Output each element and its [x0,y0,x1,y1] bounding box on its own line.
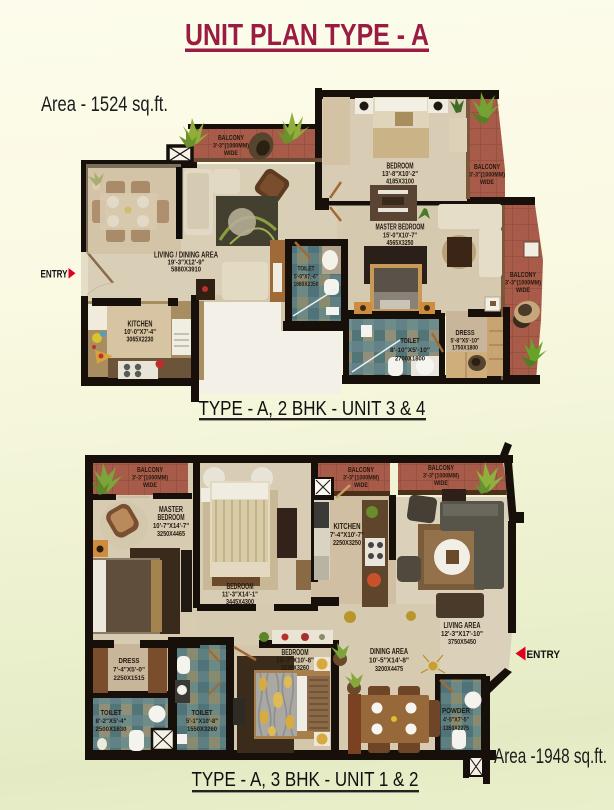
svg-text:BEDROOM: BEDROOM [282,648,309,657]
svg-text:1350X2275: 1350X2275 [443,726,470,732]
svg-text:BALCONY: BALCONY [474,164,500,171]
svg-text:3750X5450: 3750X5450 [448,639,476,646]
svg-text:3065X2230: 3065X2230 [127,337,154,344]
svg-text:2250X3250: 2250X3250 [333,540,361,547]
svg-text:1750X1800: 1750X1800 [452,345,478,352]
svg-text:BALCONY: BALCONY [137,467,163,474]
svg-text:KITCHEN: KITCHEN [128,320,153,329]
svg-text:10'-0"X7'-4": 10'-0"X7'-4" [124,329,156,336]
svg-text:5'-8"X5'-10": 5'-8"X5'-10" [451,338,480,345]
svg-text:BALCONY: BALCONY [510,272,536,279]
svg-text:5'-1"X10'-8": 5'-1"X10'-8" [186,719,218,725]
svg-text:WIDE: WIDE [224,150,239,157]
svg-text:WIDE: WIDE [434,480,449,487]
svg-text:8'-10"X5'-10": 8'-10"X5'-10" [390,347,430,354]
svg-text:7'-4"X10'-7": 7'-4"X10'-7" [330,532,364,539]
svg-text:LIVING / DINING AREA: LIVING / DINING AREA [154,250,218,259]
svg-text:1550X3260: 1550X3260 [187,727,218,733]
svg-text:BALCONY: BALCONY [218,135,244,142]
svg-text:MASTER BEDROOM: MASTER BEDROOM [376,223,425,232]
svg-text:2500X1630: 2500X1630 [96,727,128,733]
svg-text:7'-4"X5'-0": 7'-4"X5'-0" [113,667,145,674]
svg-text:3'-3"(1000MM): 3'-3"(1000MM) [343,475,379,482]
svg-text:3445X4300: 3445X4300 [226,599,254,606]
svg-text:TOILET: TOILET [401,338,421,345]
svg-text:4185X3100: 4185X3100 [386,179,414,186]
svg-text:13'-8"X10'-2": 13'-8"X10'-2" [382,171,418,178]
svg-text:2250X1515: 2250X1515 [114,675,145,682]
svg-text:BALCONY: BALCONY [348,467,374,474]
svg-text:10'-7"X10'-8": 10'-7"X10'-8" [276,658,314,665]
svg-text:TOILET: TOILET [192,710,214,717]
svg-text:3230X3260: 3230X3260 [281,665,309,672]
svg-text:TOILET: TOILET [101,710,123,717]
svg-text:ENTRY: ENTRY [527,649,561,661]
svg-text:WIDE: WIDE [480,179,495,186]
svg-text:5'-0"X7;-6": 5'-0"X7;-6" [294,275,318,281]
svg-text:WIDE: WIDE [143,482,158,489]
svg-text:10'-5"X14'-8": 10'-5"X14'-8" [369,658,409,665]
svg-text:12'-3"X17'-10": 12'-3"X17'-10" [441,631,483,638]
svg-text:10'-7"X14'-7": 10'-7"X14'-7" [153,523,189,530]
svg-text:3'-3"(1000MM): 3'-3"(1000MM) [505,280,541,287]
svg-text:3250X4465: 3250X4465 [157,531,185,538]
svg-text:1660X2350: 1660X2350 [294,282,320,288]
svg-text:4565X3250: 4565X3250 [387,240,414,247]
svg-text:TOILET: TOILET [298,266,315,273]
svg-text:DRESS: DRESS [119,656,140,665]
svg-text:WIDE: WIDE [354,482,369,489]
svg-text:LIVING AREA: LIVING AREA [444,621,481,630]
svg-text:UNIT PLAN TYPE - A: UNIT PLAN TYPE - A [185,17,429,52]
svg-text:3'-3"(1000MM): 3'-3"(1000MM) [132,475,168,482]
svg-text:TYPE - A, 3 BHK - UNIT 1 & 2: TYPE - A, 3 BHK - UNIT 1 & 2 [192,769,419,791]
svg-text:3'-3"(1000MM): 3'-3"(1000MM) [423,473,459,480]
svg-text:KITCHEN: KITCHEN [334,522,361,531]
svg-text:Area -1948 sq.ft.: Area -1948 sq.ft. [494,745,607,768]
svg-text:DRESS: DRESS [456,330,475,337]
svg-text:BEDROOM: BEDROOM [387,162,414,171]
svg-text:Area - 1524 sq.ft.: Area - 1524 sq.ft. [41,93,168,116]
svg-text:BEDROOM: BEDROOM [158,513,185,522]
svg-text:TYPE - A, 2 BHK - UNIT 3 & 4: TYPE - A, 2 BHK - UNIT 3 & 4 [199,398,426,420]
svg-text:15'-0"X10'-7": 15'-0"X10'-7" [383,232,417,239]
svg-text:2700X1800: 2700X1800 [395,355,425,362]
svg-text:DINING AREA: DINING AREA [370,647,408,656]
svg-text:3'-3"(1000MM): 3'-3"(1000MM) [469,172,505,179]
svg-text:5880X3910: 5880X3910 [171,266,201,273]
svg-text:8'-2"X5'-4": 8'-2"X5'-4" [96,719,127,725]
svg-text:POWDER: POWDER [442,708,470,715]
svg-text:11'-3"X14'-1": 11'-3"X14'-1" [222,592,258,599]
svg-text:3'-3"(1000MM): 3'-3"(1000MM) [213,143,249,150]
svg-text:BALCONY: BALCONY [428,465,454,472]
svg-text:3200X4475: 3200X4475 [375,666,403,673]
svg-text:BEDROOM: BEDROOM [227,582,254,591]
svg-text:4'-5"X7'-5": 4'-5"X7'-5" [443,718,469,724]
svg-text:WIDE: WIDE [516,287,531,294]
svg-text:ENTRY: ENTRY [41,268,68,280]
